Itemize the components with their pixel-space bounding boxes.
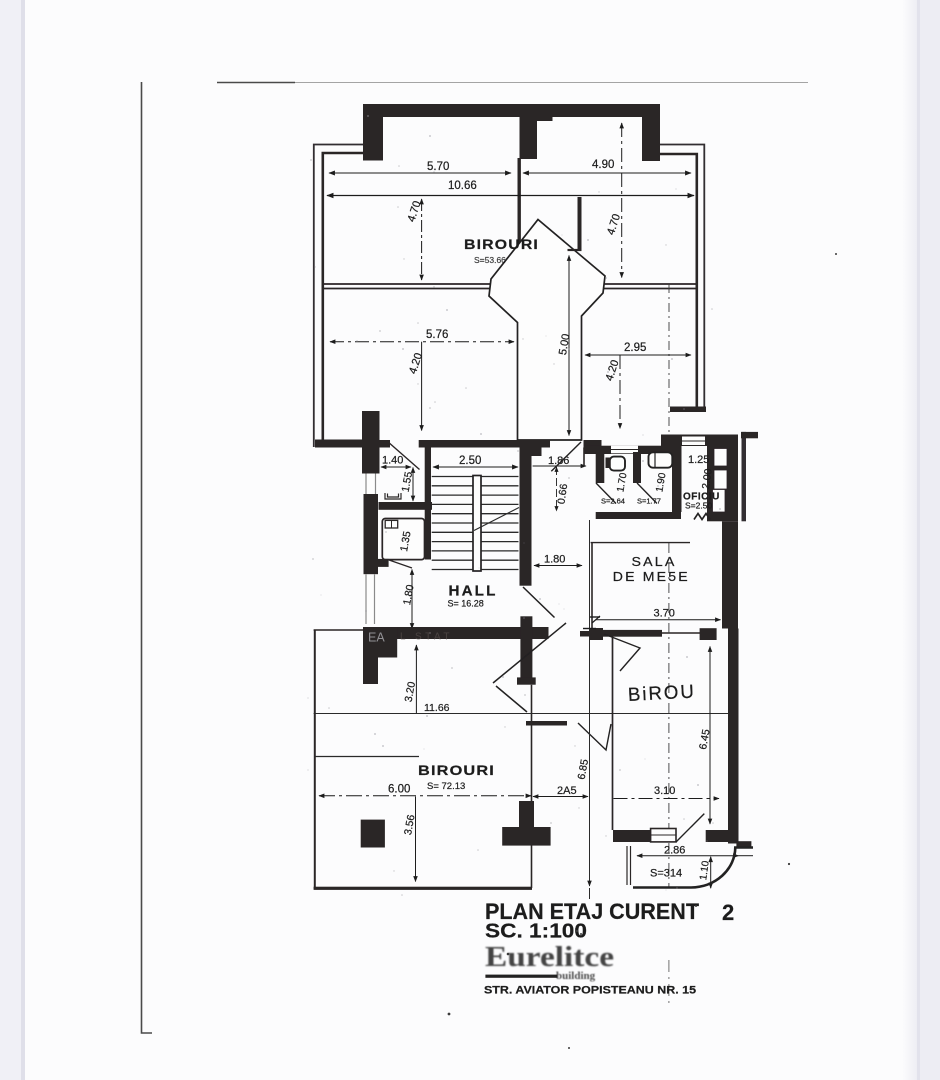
svg-text:4.90: 4.90: [592, 159, 614, 171]
svg-text:1.80: 1.80: [544, 554, 565, 566]
svg-text:5.76: 5.76: [426, 329, 448, 341]
svg-text:2A5: 2A5: [557, 785, 577, 797]
svg-text:building: building: [556, 970, 596, 982]
svg-text:10.66: 10.66: [448, 180, 477, 192]
svg-text:1.40: 1.40: [382, 455, 403, 467]
svg-text:BIROURI: BIROURI: [418, 762, 495, 778]
svg-text:S=2.64: S=2.64: [601, 497, 625, 506]
svg-text:1.25: 1.25: [688, 454, 709, 466]
svg-text:L STAT: L STAT: [400, 632, 453, 643]
svg-text:HALL: HALL: [449, 584, 498, 600]
svg-text:S=1.77: S=1.77: [637, 497, 661, 506]
svg-text:EA: EA: [368, 631, 385, 645]
svg-text:DE ME5E: DE ME5E: [613, 569, 690, 584]
svg-text:5.70: 5.70: [427, 161, 449, 173]
svg-text:S= 72.13: S= 72.13: [427, 781, 465, 792]
svg-text:2: 2: [722, 900, 734, 925]
svg-text:S=314: S=314: [650, 868, 682, 880]
svg-text:2.86: 2.86: [664, 845, 685, 857]
svg-text:BIROURI: BIROURI: [464, 237, 539, 252]
svg-text:3.70: 3.70: [654, 608, 675, 620]
svg-text:S=2.50: S=2.50: [685, 501, 712, 511]
svg-text:S=53.66: S=53.66: [474, 255, 506, 265]
svg-text:SALA: SALA: [632, 554, 677, 569]
svg-text:2.95: 2.95: [624, 342, 646, 354]
svg-text:3.10: 3.10: [654, 785, 675, 797]
svg-text:11.66: 11.66: [424, 702, 450, 714]
svg-text:SC. 1:100: SC. 1:100: [485, 921, 587, 943]
svg-text:2.50: 2.50: [459, 455, 481, 467]
svg-text:Eurelitce: Eurelitce: [485, 942, 614, 973]
svg-text:S= 16.28: S= 16.28: [448, 599, 484, 609]
svg-text:6.00: 6.00: [388, 784, 410, 796]
svg-text:BiROU: BiROU: [627, 681, 696, 706]
svg-text:STR. AVIATOR POPISTEANU NR. 15: STR. AVIATOR POPISTEANU NR. 15: [484, 985, 696, 997]
